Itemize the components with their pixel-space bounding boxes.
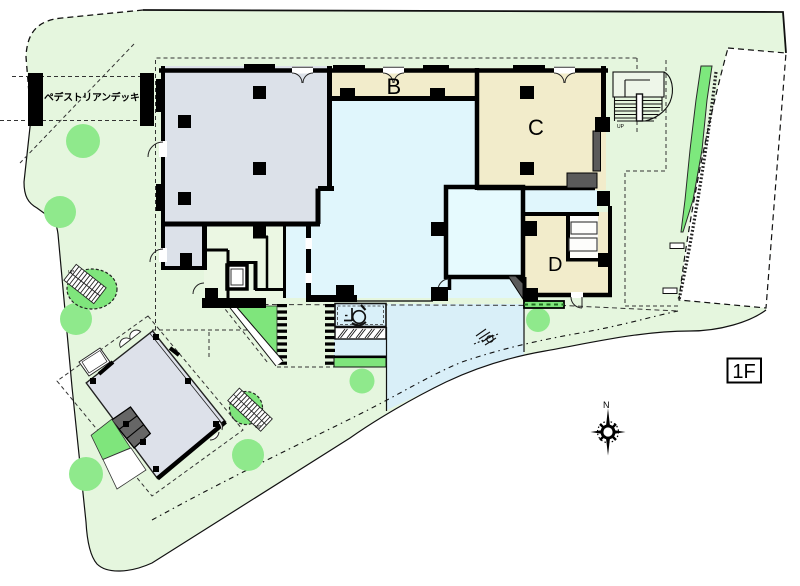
svg-text:B: B (387, 74, 402, 99)
svg-text:N: N (603, 400, 610, 410)
svg-text:C: C (528, 115, 544, 140)
svg-text:UP: UP (255, 424, 261, 429)
svg-text:UP: UP (68, 269, 74, 274)
svg-text:ペデストリアンデッキ: ペデストリアンデッキ (44, 91, 140, 104)
svg-text:D: D (548, 254, 562, 276)
svg-text:UP: UP (617, 124, 625, 130)
svg-text:1F: 1F (732, 361, 755, 383)
